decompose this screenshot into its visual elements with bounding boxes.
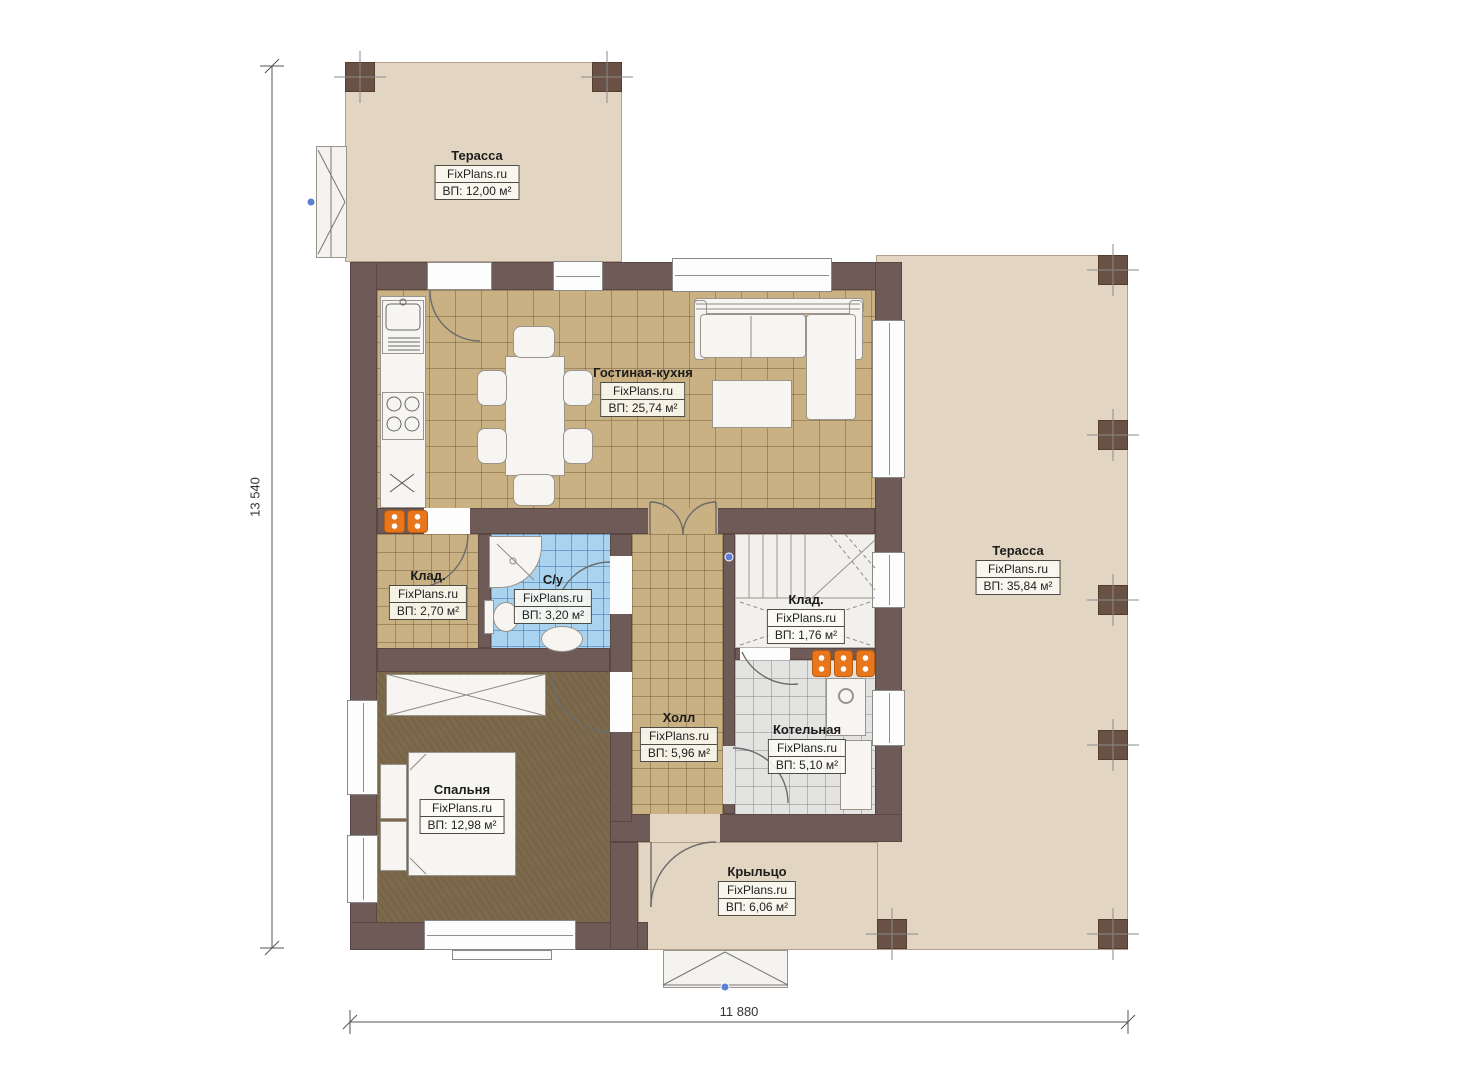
room-area: ВП: 12,00 м² xyxy=(436,182,519,199)
window-right-b xyxy=(872,690,905,746)
post-terrace-right-1 xyxy=(1098,255,1128,285)
kitchen-stove xyxy=(382,392,424,440)
door-opening-boiler xyxy=(723,746,735,804)
room-info-box: FixPlans.ru ВП: 6,06 м² xyxy=(718,881,796,916)
room-area: ВП: 12,98 м² xyxy=(421,816,504,833)
floor-plan: Терасса FixPlans.ru ВП: 12,00 м² Гостина… xyxy=(0,0,1474,1080)
door-terrace-top xyxy=(427,262,492,290)
chair-bottom xyxy=(513,474,555,506)
window-top-large xyxy=(672,258,832,292)
hall-floor xyxy=(632,534,723,814)
room-label-storage-small: Клад. FixPlans.ru ВП: 2,70 м² xyxy=(389,568,467,620)
boiler-unit-2 xyxy=(834,650,853,677)
chair-right-1 xyxy=(563,370,593,406)
room-name: Терасса xyxy=(435,148,520,163)
nightstand-1 xyxy=(380,764,407,819)
door-opening-storage xyxy=(424,508,470,534)
steps-marker-dot xyxy=(307,198,315,206)
room-label-bathroom: С/у FixPlans.ru ВП: 3,20 м² xyxy=(514,572,592,624)
window-right-a xyxy=(872,552,905,608)
room-info-box: FixPlans.ru ВП: 12,00 м² xyxy=(435,165,520,200)
brand-label: FixPlans.ru xyxy=(768,610,844,626)
coffee-table xyxy=(712,380,792,428)
window-living-right xyxy=(872,320,905,478)
room-name: Гостиная-кухня xyxy=(593,365,693,380)
room-info-box: FixPlans.ru ВП: 1,76 м² xyxy=(767,609,845,644)
room-info-box: FixPlans.ru ВП: 5,10 м² xyxy=(768,739,846,774)
post-terrace-top-right xyxy=(592,62,622,92)
room-area: ВП: 35,84 м² xyxy=(977,577,1060,594)
terrace-right-floor xyxy=(876,255,1128,950)
room-info-box: FixPlans.ru ВП: 25,74 м² xyxy=(601,382,686,417)
brand-label: FixPlans.ru xyxy=(436,166,519,182)
post-porch-corner xyxy=(877,919,907,949)
door-opening-bedroom xyxy=(610,672,632,732)
door-opening-living-hall xyxy=(648,508,718,534)
room-label-boiler-room: Котельная FixPlans.ru ВП: 5,10 м² xyxy=(768,722,846,774)
room-name: Крыльцо xyxy=(718,864,796,879)
room-name: Котельная xyxy=(768,722,846,737)
door-opening-entrance xyxy=(650,814,720,842)
room-label-terrace-top: Терасса FixPlans.ru ВП: 12,00 м² xyxy=(435,148,520,200)
brand-label: FixPlans.ru xyxy=(515,590,591,606)
room-name: Клад. xyxy=(389,568,467,583)
room-name: Спальня xyxy=(420,782,505,797)
boiler-dial xyxy=(838,688,854,704)
room-area: ВП: 2,70 м² xyxy=(390,602,466,619)
room-label-living-kitchen: Гостиная-кухня FixPlans.ru ВП: 25,74 м² xyxy=(593,365,693,417)
dining-table xyxy=(505,356,565,476)
room-info-box: FixPlans.ru ВП: 12,98 м² xyxy=(420,799,505,834)
room-name: Терасса xyxy=(976,543,1061,558)
wardrobe xyxy=(386,674,546,716)
room-name: С/у xyxy=(514,572,592,587)
window-bedroom-bottom xyxy=(424,920,576,950)
window-left-b xyxy=(347,835,378,903)
wall-bedroom-top xyxy=(377,648,610,672)
room-area: ВП: 25,74 м² xyxy=(602,399,685,416)
brand-label: FixPlans.ru xyxy=(977,561,1060,577)
bathroom-sink xyxy=(541,626,583,652)
radiator-kitchen-1 xyxy=(384,510,405,533)
brand-label: FixPlans.ru xyxy=(641,728,717,744)
dimension-width-label: 11 880 xyxy=(720,1004,759,1019)
brand-label: FixPlans.ru xyxy=(421,800,504,816)
door-opening-under-stairs xyxy=(740,648,790,660)
room-label-storage-under-stairs: Клад. FixPlans.ru ВП: 1,76 м² xyxy=(767,592,845,644)
window-top-small xyxy=(553,261,603,291)
nightstand-2 xyxy=(380,821,407,871)
post-terrace-right-3 xyxy=(1098,585,1128,615)
radiator-kitchen-2 xyxy=(407,510,428,533)
room-name: Клад. xyxy=(767,592,845,607)
chair-right-2 xyxy=(563,428,593,464)
boiler-unit-3 xyxy=(856,650,875,677)
wall-porch-left xyxy=(610,842,638,950)
room-area: ВП: 3,20 м² xyxy=(515,606,591,623)
room-area: ВП: 5,96 м² xyxy=(641,744,717,761)
dimension-height-label: 13 540 xyxy=(248,477,263,517)
brand-label: FixPlans.ru xyxy=(390,586,466,602)
room-area: ВП: 6,06 м² xyxy=(719,898,795,915)
brand-label: FixPlans.ru xyxy=(719,882,795,898)
room-info-box: FixPlans.ru ВП: 35,84 м² xyxy=(976,560,1061,595)
room-label-porch: Крыльцо FixPlans.ru ВП: 6,06 м² xyxy=(718,864,796,916)
room-name: Холл xyxy=(640,710,718,725)
sofa-chaise xyxy=(806,314,856,420)
room-info-box: FixPlans.ru ВП: 5,96 м² xyxy=(640,727,718,762)
room-label-terrace-right: Терасса FixPlans.ru ВП: 35,84 м² xyxy=(976,543,1061,595)
chair-left-2 xyxy=(477,428,507,464)
sofa-seat xyxy=(700,314,806,358)
post-terrace-right-2 xyxy=(1098,420,1128,450)
room-info-box: FixPlans.ru ВП: 3,20 м² xyxy=(514,589,592,624)
chair-top xyxy=(513,326,555,358)
window-left-a xyxy=(347,700,378,795)
brand-label: FixPlans.ru xyxy=(769,740,845,756)
window-sill-bottom xyxy=(452,950,552,960)
post-terrace-right-4 xyxy=(1098,730,1128,760)
terrace-steps xyxy=(316,146,347,258)
kitchen-sink xyxy=(382,300,424,354)
chair-left-1 xyxy=(477,370,507,406)
door-opening-bathroom xyxy=(610,556,632,614)
room-info-box: FixPlans.ru ВП: 2,70 м² xyxy=(389,585,467,620)
porch-steps xyxy=(663,950,788,988)
room-label-bedroom: Спальня FixPlans.ru ВП: 12,98 м² xyxy=(420,782,505,834)
room-label-hall: Холл FixPlans.ru ВП: 5,96 м² xyxy=(640,710,718,762)
room-area: ВП: 1,76 м² xyxy=(768,626,844,643)
sofa-back xyxy=(694,298,864,314)
brand-label: FixPlans.ru xyxy=(602,383,685,399)
boiler-unit-1 xyxy=(812,650,831,677)
post-terrace-top-left xyxy=(345,62,375,92)
room-area: ВП: 5,10 м² xyxy=(769,756,845,773)
post-terrace-bottom-right xyxy=(1098,919,1128,949)
